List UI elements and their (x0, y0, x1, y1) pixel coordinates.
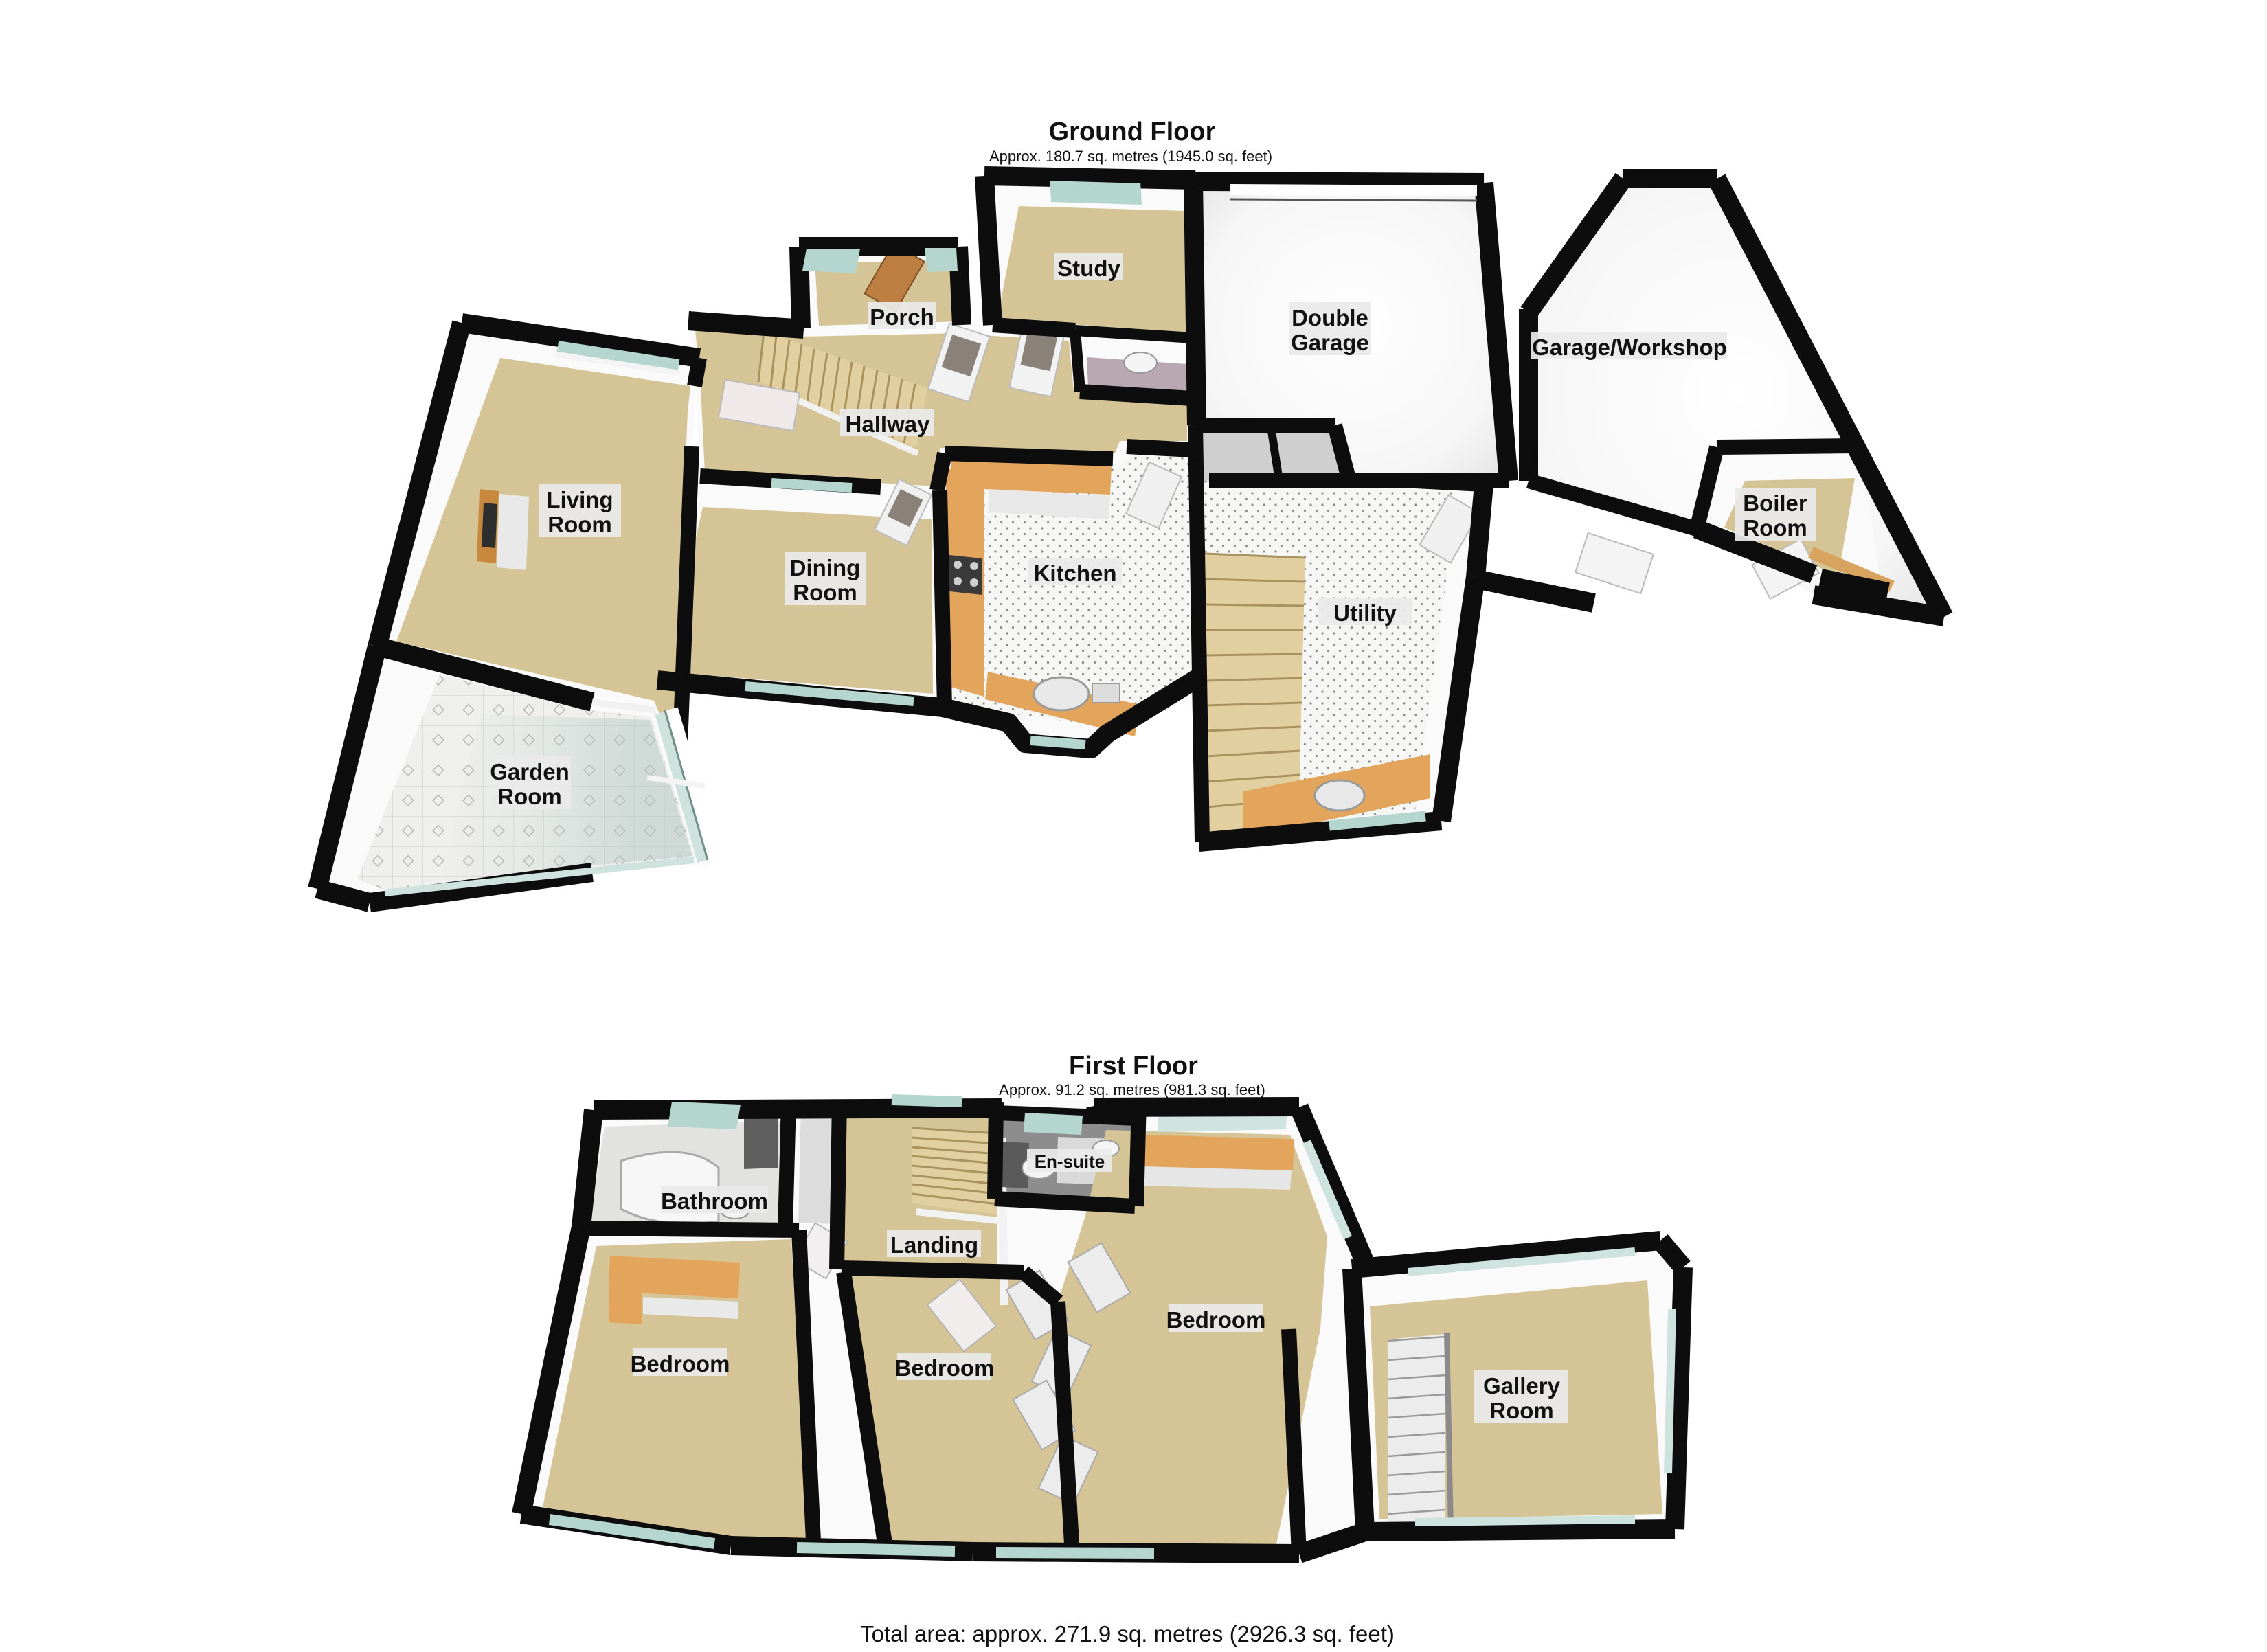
svg-text:Double: Double (1292, 305, 1368, 330)
svg-text:First Floor: First Floor (1069, 1052, 1198, 1080)
svg-text:Boiler: Boiler (1743, 490, 1807, 516)
svg-text:Kitchen: Kitchen (1033, 561, 1116, 586)
svg-text:Bedroom: Bedroom (1166, 1307, 1266, 1333)
svg-text:Bedroom: Bedroom (631, 1351, 730, 1377)
svg-text:Room: Room (1743, 515, 1807, 541)
svg-text:Garage: Garage (1291, 330, 1369, 355)
svg-text:Dining: Dining (790, 555, 861, 580)
svg-text:Study: Study (1057, 256, 1120, 281)
svg-text:Utility: Utility (1333, 600, 1397, 626)
svg-text:Approx. 180.7 sq. metres (1945: Approx. 180.7 sq. metres (1945.0 sq. fee… (989, 148, 1272, 165)
svg-text:Ground Floor: Ground Floor (1049, 117, 1216, 146)
svg-text:Garage/Workshop: Garage/Workshop (1532, 335, 1727, 360)
svg-text:Bathroom: Bathroom (661, 1188, 768, 1214)
svg-text:Room: Room (793, 580, 857, 605)
svg-text:Living: Living (546, 487, 613, 512)
svg-text:Landing: Landing (890, 1232, 978, 1258)
svg-text:Approx. 91.2 sq. metres (981.3: Approx. 91.2 sq. metres (981.3 sq. feet) (999, 1081, 1265, 1098)
svg-text:Room: Room (1489, 1398, 1554, 1423)
svg-text:Bedroom: Bedroom (895, 1355, 995, 1381)
svg-text:Room: Room (548, 512, 612, 537)
svg-text:Gallery: Gallery (1483, 1373, 1561, 1399)
svg-text:Hallway: Hallway (846, 411, 931, 437)
svg-text:Garden: Garden (490, 759, 569, 784)
svg-text:Room: Room (497, 784, 562, 809)
svg-text:Total area: approx. 271.9 sq.: Total area: approx. 271.9 sq. metres (29… (860, 1621, 1395, 1647)
svg-text:Porch: Porch (870, 304, 934, 330)
svg-text:En-suite: En-suite (1035, 1151, 1105, 1172)
